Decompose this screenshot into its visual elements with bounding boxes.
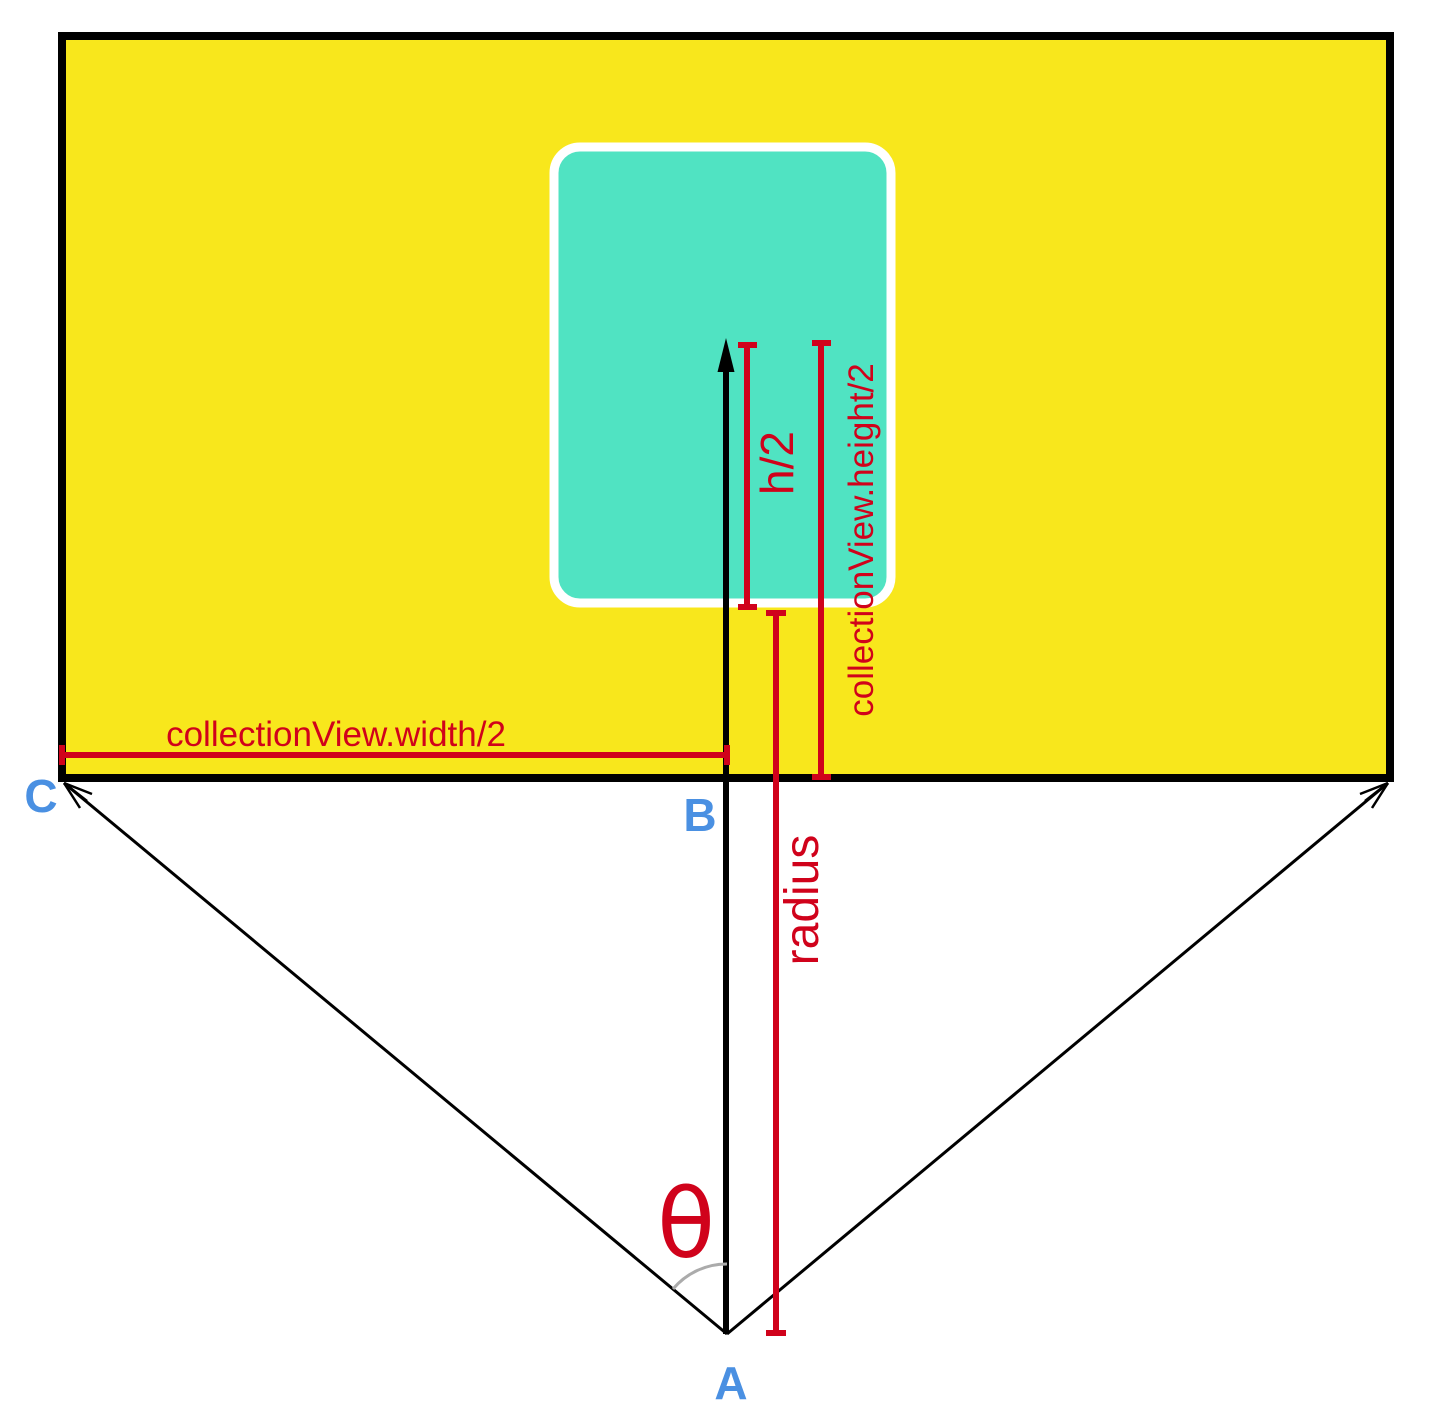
theta-label: θ (657, 1170, 715, 1280)
point-c-label: C (24, 770, 57, 822)
collection-view-geometry-diagram: collectionView.width/2 h/2 collectionVie… (0, 0, 1444, 1422)
vector-a-to-c-line (64, 783, 727, 1334)
view-height-half-measure-label: collectionView.height/2 (842, 363, 881, 717)
point-b-label: B (683, 789, 716, 841)
view-height-half-measure: collectionView.height/2 (812, 343, 881, 777)
cell-rect (554, 147, 891, 603)
cell-height-half-measure-label: h/2 (751, 431, 803, 495)
radius-measure-label: radius (776, 835, 829, 966)
point-a-label: A (714, 1357, 747, 1409)
width-half-measure-label: collectionView.width/2 (166, 715, 506, 754)
diagram-stage: collectionView.width/2 h/2 collectionVie… (0, 0, 1444, 1422)
